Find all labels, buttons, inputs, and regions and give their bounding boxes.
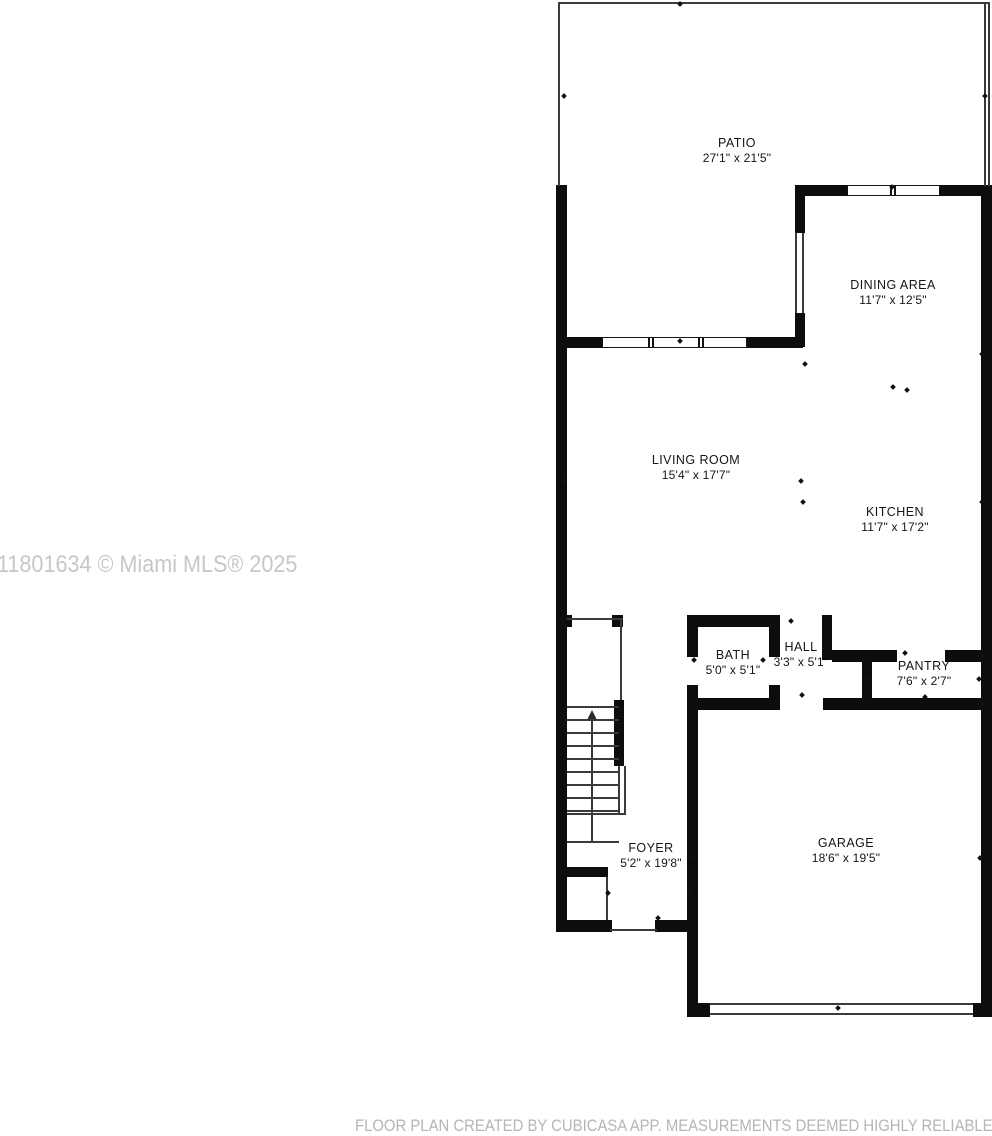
room-name: GARAGE bbox=[812, 836, 880, 851]
wall-segment bbox=[973, 1003, 992, 1017]
thin-line bbox=[567, 797, 619, 799]
room-label-garage: GARAGE 18'6" x 19'5" bbox=[812, 836, 880, 866]
room-label-patio: PATIO 27'1" x 21'5" bbox=[703, 136, 771, 166]
mls-watermark: 11801634 © Miami MLS® 2025 bbox=[0, 551, 297, 579]
room-label-dining-area: DINING AREA 11'7" x 12'5" bbox=[850, 278, 936, 308]
room-name: PANTRY bbox=[897, 659, 952, 674]
wall-segment bbox=[981, 185, 992, 1017]
thin-line bbox=[606, 877, 608, 920]
measurement-tick bbox=[835, 1005, 841, 1011]
window bbox=[602, 337, 747, 348]
thin-line bbox=[610, 929, 657, 931]
measurement-tick bbox=[561, 93, 567, 99]
thin-line bbox=[567, 719, 619, 721]
room-name: DINING AREA bbox=[850, 278, 936, 293]
thin-line bbox=[802, 233, 804, 313]
room-label-pantry: PANTRY 7'6" x 2'7" bbox=[897, 659, 952, 689]
wall-segment bbox=[687, 627, 698, 657]
thin-line bbox=[620, 620, 622, 700]
thin-line bbox=[567, 618, 623, 620]
measurement-tick bbox=[904, 387, 910, 393]
window-divider bbox=[648, 338, 650, 347]
wall-segment bbox=[655, 920, 698, 932]
thin-line bbox=[795, 233, 797, 313]
room-name: KITCHEN bbox=[861, 505, 929, 520]
wall-segment bbox=[795, 185, 805, 233]
room-dims: 11'7" x 17'2" bbox=[861, 520, 929, 535]
thin-line bbox=[988, 2, 990, 186]
wall-segment bbox=[556, 615, 572, 627]
window-divider bbox=[702, 338, 704, 347]
wall-segment bbox=[769, 615, 780, 657]
window-divider bbox=[652, 338, 654, 347]
thin-line bbox=[567, 784, 619, 786]
wall-segment bbox=[556, 920, 612, 932]
room-label-foyer: FOYER 5'2" x 19'8" bbox=[620, 841, 682, 871]
wall-segment bbox=[556, 337, 602, 348]
room-name: HALL bbox=[774, 640, 829, 655]
thin-line bbox=[567, 732, 619, 734]
room-name: LIVING ROOM bbox=[652, 453, 740, 468]
room-dims: 15'4" x 17'7" bbox=[652, 468, 740, 483]
thin-line bbox=[710, 1013, 973, 1015]
room-dims: 11'7" x 12'5" bbox=[850, 293, 936, 308]
room-dims: 18'6" x 19'5" bbox=[812, 851, 880, 866]
measurement-tick bbox=[799, 692, 805, 698]
wall-segment bbox=[687, 615, 780, 627]
thin-line bbox=[567, 771, 619, 773]
wall-segment bbox=[687, 685, 698, 1017]
wall-segment bbox=[687, 698, 780, 710]
room-name: FOYER bbox=[620, 841, 682, 856]
wall-segment bbox=[945, 650, 981, 662]
thin-line bbox=[567, 810, 619, 812]
measurement-tick bbox=[798, 478, 804, 484]
thin-line bbox=[567, 813, 626, 815]
wall-segment bbox=[747, 337, 803, 348]
room-name: PATIO bbox=[703, 136, 771, 151]
room-dims: 5'0" x 5'1" bbox=[706, 663, 761, 678]
thin-line bbox=[710, 1003, 973, 1005]
wall-segment bbox=[687, 1003, 710, 1017]
wall-segment bbox=[556, 185, 567, 932]
thin-line bbox=[624, 766, 626, 813]
thin-line bbox=[558, 3, 560, 186]
room-dims: 5'2" x 19'8" bbox=[620, 856, 682, 871]
measurement-tick bbox=[800, 499, 806, 505]
thin-line bbox=[567, 706, 619, 708]
room-label-living-room: LIVING ROOM 15'4" x 17'7" bbox=[652, 453, 740, 483]
room-dims: 3'3" x 5'1" bbox=[774, 655, 829, 670]
measurement-tick bbox=[691, 657, 697, 663]
room-label-kitchen: KITCHEN 11'7" x 17'2" bbox=[861, 505, 929, 535]
thin-line bbox=[558, 2, 990, 4]
room-dims: 7'6" x 2'7" bbox=[897, 674, 952, 689]
wall-segment bbox=[832, 650, 897, 662]
wall-segment bbox=[556, 867, 608, 877]
thin-line bbox=[567, 841, 619, 843]
measurement-tick bbox=[902, 650, 908, 656]
wall-segment bbox=[822, 615, 832, 660]
measurement-tick bbox=[802, 361, 808, 367]
room-name: BATH bbox=[706, 648, 761, 663]
room-dims: 27'1" x 21'5" bbox=[703, 151, 771, 166]
measurement-tick bbox=[890, 384, 896, 390]
thin-line bbox=[618, 766, 620, 813]
window-divider bbox=[698, 338, 700, 347]
measurement-tick bbox=[788, 618, 794, 624]
thin-line bbox=[591, 720, 593, 841]
measurement-tick bbox=[760, 657, 766, 663]
thin-line bbox=[567, 758, 619, 760]
thin-line bbox=[567, 745, 619, 747]
room-label-bath: BATH 5'0" x 5'1" bbox=[706, 648, 761, 678]
wall-segment bbox=[823, 698, 992, 710]
footer-disclaimer: FLOOR PLAN CREATED BY CUBICASA APP. MEAS… bbox=[355, 1116, 992, 1136]
room-label-hall: HALL 3'3" x 5'1" bbox=[774, 640, 829, 670]
